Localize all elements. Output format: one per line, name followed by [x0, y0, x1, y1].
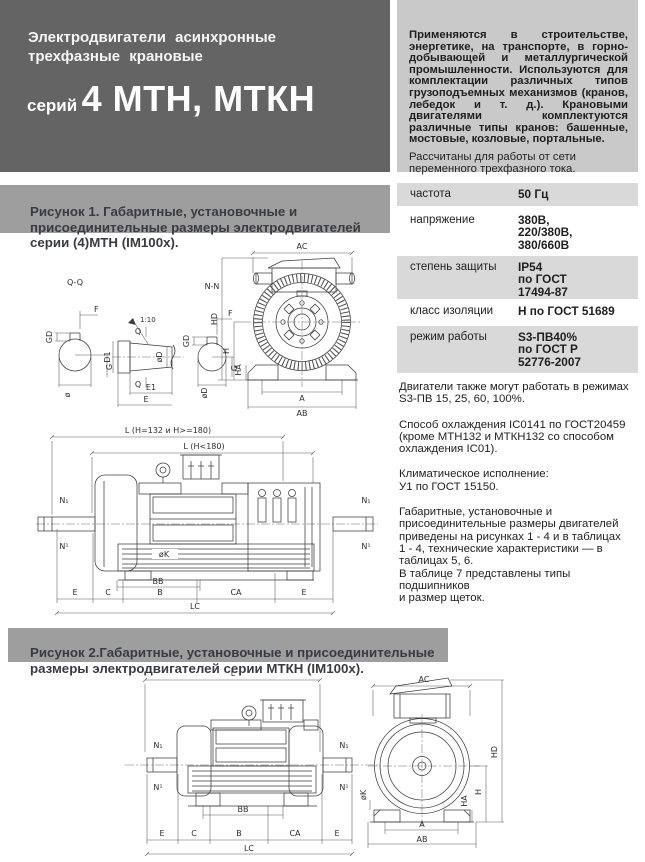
figure2-caption-banner: Рисунок 2.Габаритные, установочные и при…	[8, 628, 448, 662]
spec-label: степень защиты	[397, 261, 518, 299]
section-mark-n1: N¹	[339, 783, 348, 792]
dim-label-e: E	[334, 829, 339, 838]
dim-label-lc: LC	[190, 602, 200, 611]
dim-label-h: H	[222, 348, 231, 354]
dim-label-b: B	[157, 588, 163, 597]
dim-label-diad: øD	[155, 351, 164, 362]
dim-label-ha: HA	[234, 364, 243, 376]
spec-row: напряжение 380В, 220/380В, 380/660В	[397, 206, 638, 256]
dim-label-ac: AC	[297, 242, 308, 251]
note-paragraph: Габаритные, установочные и присоединител…	[399, 506, 640, 604]
dim-label-e: E	[301, 588, 306, 597]
motor-side-view: L (H=132 и H>=180) L (H<180) øK BB N₁ N¹	[36, 426, 378, 615]
section-mark-n1: N¹	[153, 783, 162, 792]
figure1-drawing: Q-Q F GD G ø 1:10 D1 øD Q Q E1 E N-N F G…	[0, 237, 390, 627]
dim-label-ha: HA	[460, 795, 469, 807]
spec-value: S3-ПВ40% по ГОСТ Р 52776-2007	[518, 331, 581, 373]
dim-label-l1: L (H=132 и H>=180)	[125, 426, 211, 435]
section-mark-n1: N₁	[153, 741, 162, 750]
dim-label-bb: BB	[238, 805, 249, 814]
applications-paragraph: Применяются в строительстве, энергетике,…	[409, 30, 628, 146]
dim-label-e: E	[143, 395, 148, 404]
dim-label-f: F	[228, 309, 233, 318]
shaft-section-nn: N-N F GD G øD	[182, 282, 239, 399]
dim-label-ca: CA	[289, 829, 301, 838]
dim-label-lc: LC	[244, 844, 254, 853]
spec-row: режим работы S3-ПВ40% по ГОСТ Р 52776-20…	[397, 326, 638, 373]
dim-label-b: B	[236, 829, 242, 838]
spec-row: степень защиты IP54 по ГОСТ 17494-87	[397, 256, 638, 299]
motor-front-view-mtkn: AC A AB HD H HA øK	[359, 675, 504, 848]
specs-table: частота 50 Гц напряжение 380В, 220/380В,…	[397, 183, 638, 373]
section-mark-n1: N₁	[361, 496, 370, 505]
spec-value: Н по ГОСТ 51689	[518, 305, 615, 326]
shaft-section-qq: Q-Q F GD G ø	[45, 278, 114, 397]
note-paragraph: Климатическое исполнение: У1 по ГОСТ 151…	[399, 468, 640, 493]
series-line: серий 4 МТН, МТКН	[27, 78, 315, 120]
dim-label-ab: AB	[297, 409, 308, 418]
dim-label-d1: D1	[103, 351, 112, 362]
spec-row: класс изоляции Н по ГОСТ 51689	[397, 299, 638, 326]
dim-label-h: H	[474, 789, 483, 795]
spec-value: IP54 по ГОСТ 17494-87	[518, 261, 568, 299]
dim-label-nn: N-N	[205, 282, 220, 291]
series-prefix: серий	[27, 96, 77, 115]
dim-label-diak: øK	[359, 789, 368, 800]
dim-label-e: E	[72, 588, 77, 597]
spec-row: частота 50 Гц	[397, 183, 638, 206]
notes-panel: Двигатели также могут работать в режимах…	[399, 381, 640, 617]
dim-label-q: Q	[135, 327, 141, 336]
dim-label-ab: AB	[417, 835, 428, 844]
dim-label-dia: ø	[63, 392, 72, 397]
section-mark-n1: N¹	[361, 542, 370, 551]
dim-label-a: A	[419, 820, 425, 829]
motor-side-view-mtkn: L BB N₁ N¹ N₁ N¹ E C B CA E LC	[125, 669, 380, 856]
figure2-drawing: L BB N₁ N¹ N₁ N¹ E C B CA E LC	[0, 662, 645, 862]
dim-label-diak: øK	[159, 550, 170, 559]
dim-label-hd: HD	[490, 746, 499, 758]
figure1-caption-banner: Рисунок 1. Габаритные, установочные и пр…	[0, 185, 390, 233]
dim-label-gd: GD	[182, 335, 191, 347]
spec-label: напряжение	[397, 214, 518, 256]
section-mark-n1: N₁	[59, 496, 68, 505]
dim-label-e: E	[159, 829, 164, 838]
dim-label-l: L	[231, 669, 236, 678]
series-name: 4 МТН, МТКН	[82, 78, 315, 119]
note-paragraph: Двигатели также могут работать в режимах…	[399, 381, 640, 406]
dim-label-l2: L (H<180)	[183, 442, 224, 451]
section-mark-n1: N¹	[59, 542, 68, 551]
spec-label: режим работы	[397, 331, 518, 373]
dim-label-g: G	[105, 364, 114, 370]
section-mark-n1: N₁	[339, 741, 348, 750]
spec-value: 50 Гц	[518, 188, 548, 206]
dim-label-gd: GD	[45, 331, 54, 343]
dim-label-diad: øD	[200, 387, 209, 398]
header-block: Электродвигатели асинхронные трехфазные …	[0, 0, 390, 172]
spec-label: частота	[397, 188, 518, 206]
spec-value: 380В, 220/380В, 380/660В	[518, 214, 572, 256]
dim-label-taper: 1:10	[140, 316, 156, 324]
dim-label-qq: Q-Q	[67, 278, 83, 287]
intro-panel: Применяются в строительстве, энергетике,…	[397, 0, 638, 172]
supply-paragraph: Рассчитаны для работы от сети переменног…	[409, 152, 628, 175]
page-title: Электродвигатели асинхронные трехфазные …	[28, 28, 276, 66]
dim-label-c: C	[105, 588, 111, 597]
dim-label-f: F	[94, 305, 99, 314]
catalog-page: { "header": { "title": "Электродвигатели…	[0, 0, 645, 862]
spec-label: класс изоляции	[397, 305, 518, 326]
dim-label-bb: BB	[153, 577, 164, 586]
dim-label-hd: HD	[210, 313, 219, 325]
dim-label-c: C	[191, 829, 197, 838]
dim-label-q: Q	[135, 380, 141, 389]
dim-label-e1: E1	[146, 383, 156, 392]
motor-front-view: AC A AB HD H HA	[210, 242, 362, 418]
dim-label-a: A	[299, 394, 305, 403]
dim-label-ca: CA	[230, 588, 242, 597]
note-paragraph: Способ охлаждения IC0141 по ГОСТ20459 (к…	[399, 419, 640, 456]
shaft-end-detail: 1:10 D1 øD Q Q E1 E	[103, 316, 184, 407]
